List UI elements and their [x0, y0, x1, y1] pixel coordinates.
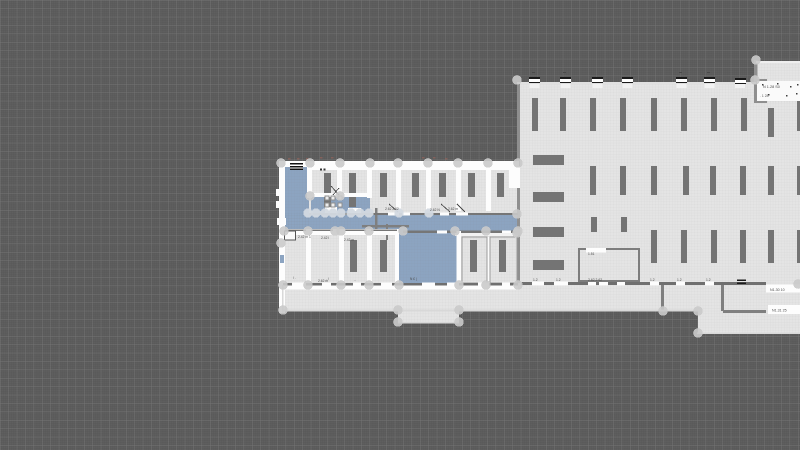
svg-text:. 1 28: . 1 28	[760, 94, 769, 98]
svg-text:1.2: 1.2	[706, 278, 711, 282]
svg-text:2.42 m: 2.42 m	[344, 238, 354, 242]
svg-text:1.2: 1.2	[650, 278, 655, 282]
svg-text:N 1.28 S0: N 1.28 S0	[763, 85, 780, 89]
svg-text:/ .: / .	[293, 276, 296, 280]
svg-text:2.62 N: 2.62 N	[430, 208, 440, 212]
svg-text:2.42 m 1: 2.42 m 1	[298, 235, 311, 239]
svg-text:1.2: 1.2	[677, 278, 682, 282]
svg-text:..: ..	[354, 278, 356, 282]
svg-text:1.2: 1.2	[533, 278, 538, 282]
svg-text:2.62 m: 2.62 m	[318, 279, 328, 283]
svg-text:2.62 2.62: 2.62 2.62	[588, 278, 602, 282]
svg-text:1.51: 1.51	[588, 252, 595, 256]
svg-text:N1.31 25: N1.31 25	[772, 309, 787, 313]
svg-text:2.62 2.62: 2.62 2.62	[385, 207, 399, 211]
svg-text:2.42 l: 2.42 l	[321, 236, 329, 240]
svg-text:2.62 m: 2.62 m	[448, 207, 458, 211]
svg-text:N1.30 10: N1.30 10	[770, 288, 785, 292]
svg-text:N £ |: N £ |	[410, 277, 417, 281]
svg-text:1.2: 1.2	[556, 278, 561, 282]
